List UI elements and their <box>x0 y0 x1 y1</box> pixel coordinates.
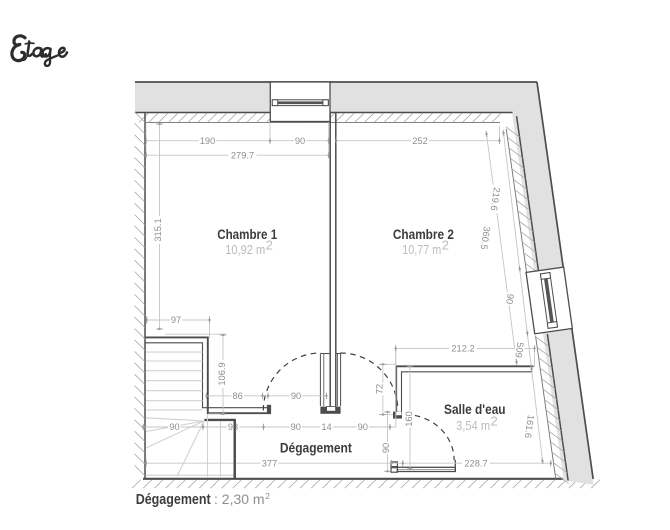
svg-text:2: 2 <box>442 237 449 252</box>
svg-text:90: 90 <box>291 422 301 432</box>
svg-text:315.1: 315.1 <box>153 218 163 241</box>
svg-text:: 2,30 m: : 2,30 m <box>214 491 265 507</box>
svg-text:160: 160 <box>404 411 414 427</box>
svg-text:Dégagement: Dégagement <box>280 439 352 455</box>
svg-text:279.7: 279.7 <box>231 150 254 160</box>
svg-text:3,54 m: 3,54 m <box>456 418 490 433</box>
svg-text:10,77 m: 10,77 m <box>402 242 441 257</box>
svg-text:90: 90 <box>358 422 368 432</box>
svg-text:97: 97 <box>171 315 181 325</box>
svg-text:377: 377 <box>262 458 278 468</box>
svg-text:252: 252 <box>412 136 428 146</box>
svg-text:360.5: 360.5 <box>479 226 492 250</box>
svg-text:2: 2 <box>265 491 270 501</box>
svg-text:90: 90 <box>291 391 301 401</box>
svg-text:90: 90 <box>169 422 179 432</box>
svg-text:90: 90 <box>295 136 305 146</box>
svg-text:228.7: 228.7 <box>464 458 487 468</box>
svg-text:2: 2 <box>491 413 498 428</box>
svg-text:106.9: 106.9 <box>217 362 227 385</box>
svg-text:509: 509 <box>513 342 525 359</box>
svg-text:90: 90 <box>504 293 515 305</box>
svg-text:86: 86 <box>233 391 243 401</box>
svg-text:10,92 m: 10,92 m <box>225 242 265 257</box>
svg-text:93: 93 <box>228 422 238 432</box>
svg-text:161.6: 161.6 <box>523 414 536 438</box>
svg-text:190: 190 <box>200 136 216 146</box>
svg-text:212.2: 212.2 <box>451 344 474 354</box>
svg-text:72: 72 <box>374 384 384 394</box>
svg-text:14: 14 <box>321 422 331 432</box>
svg-text:2: 2 <box>266 237 273 252</box>
svg-text:90: 90 <box>381 443 391 453</box>
svg-text:Dégagement: Dégagement <box>136 492 211 508</box>
svg-text:219.6: 219.6 <box>489 187 502 211</box>
